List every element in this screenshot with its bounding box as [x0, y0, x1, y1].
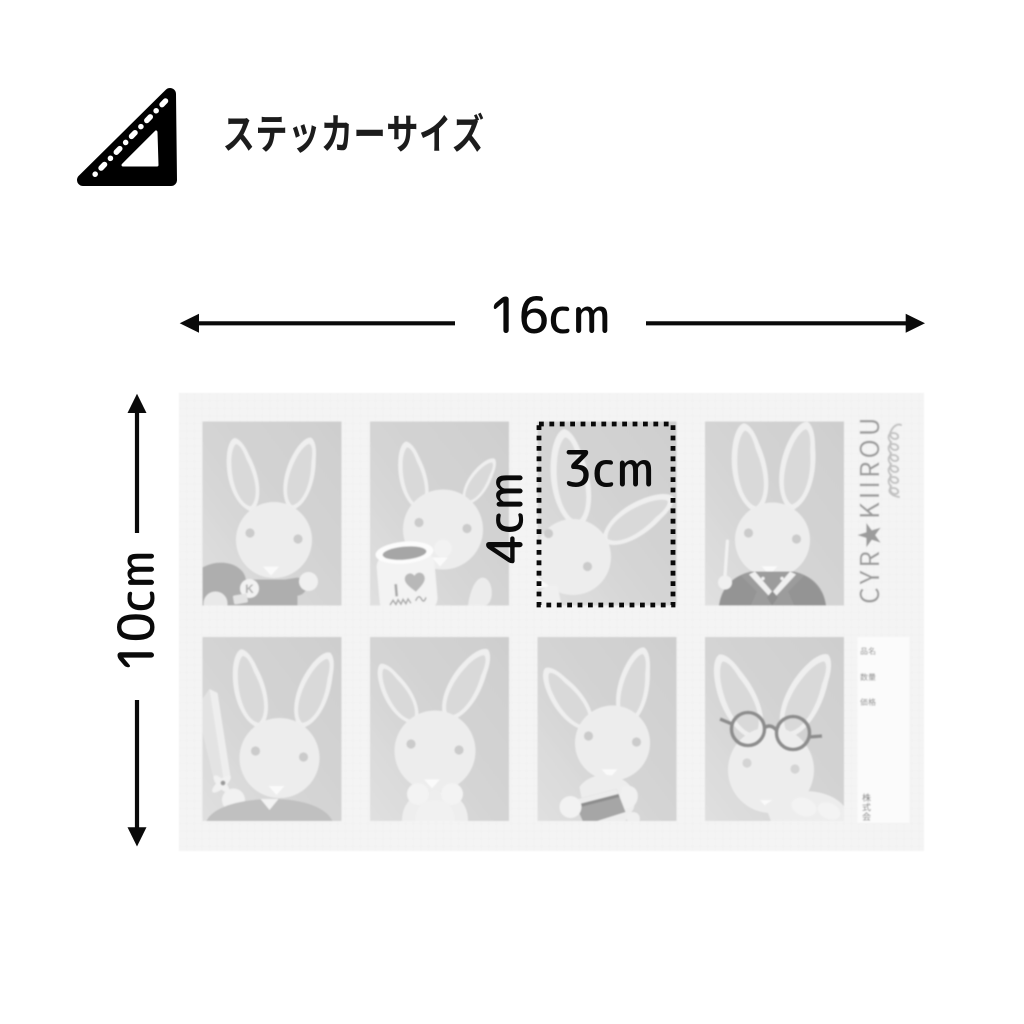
svg-text:K: K: [245, 582, 254, 596]
